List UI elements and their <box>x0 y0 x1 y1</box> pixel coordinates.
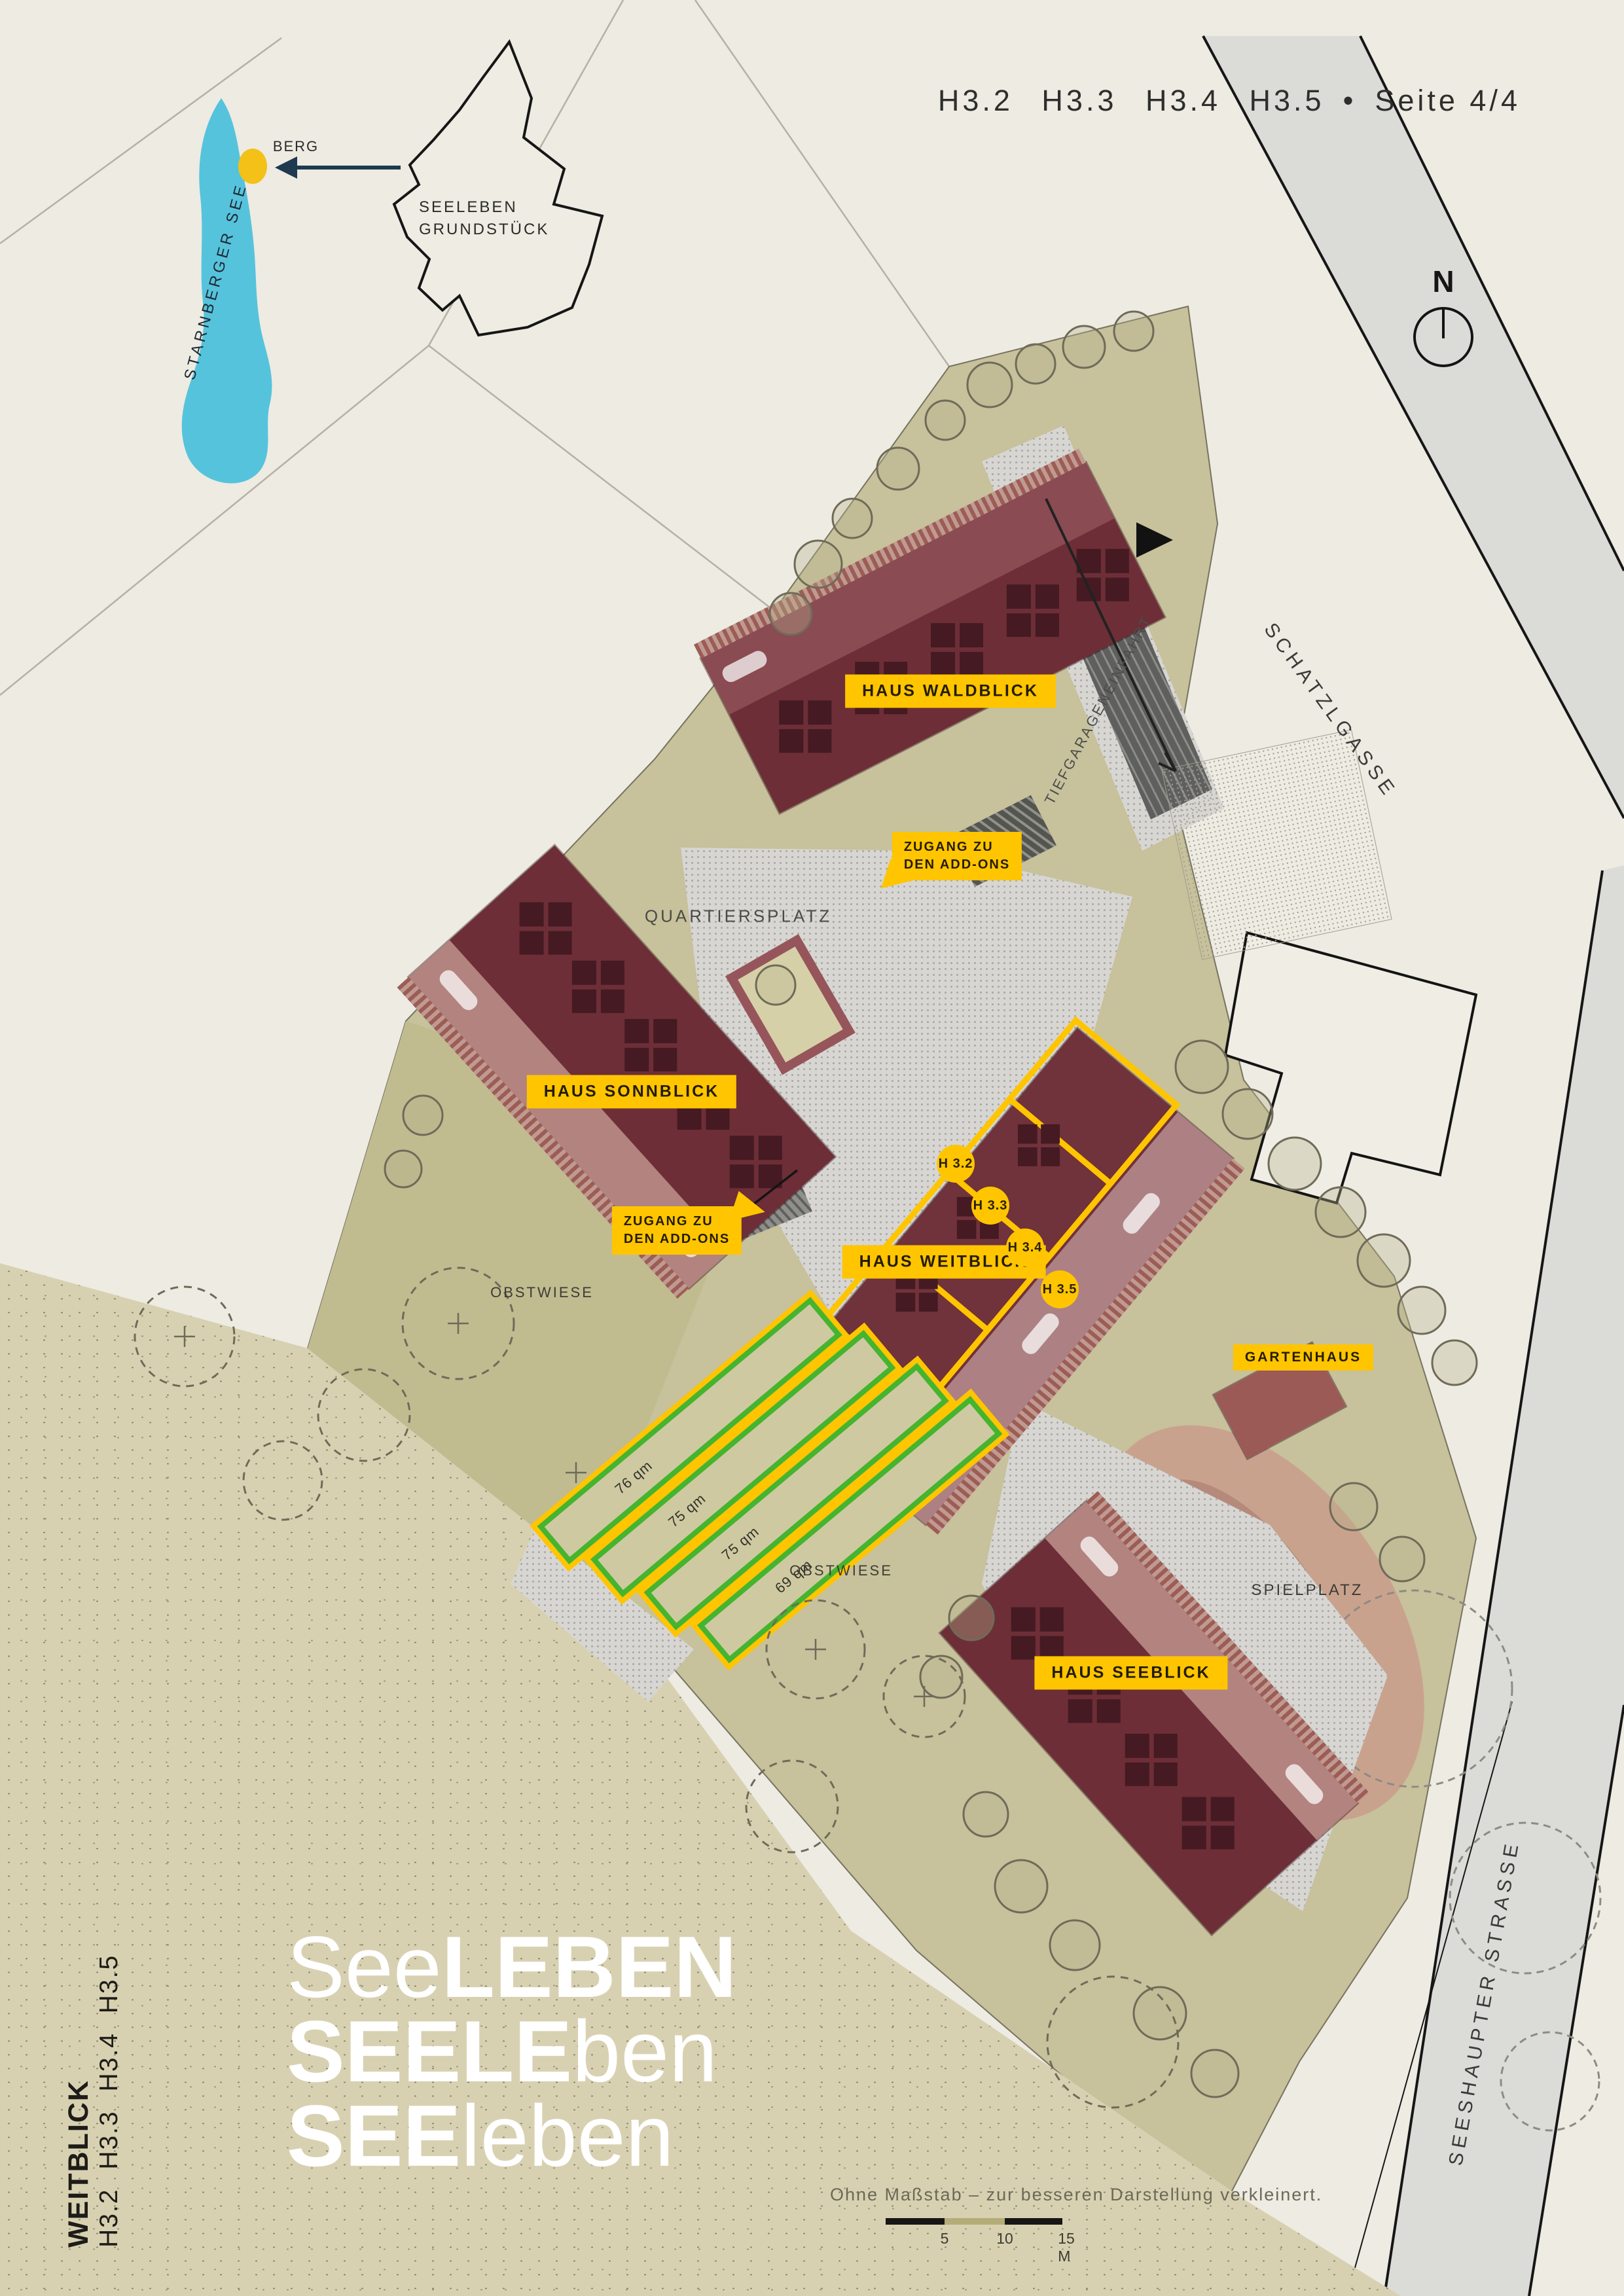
sidebar-subtitle: H3.2 H3.3 H3.4 H3.5 <box>95 1954 124 2248</box>
inset-site-line1: SEELEBEN <box>419 196 549 219</box>
playground-label: SPIELPLATZ <box>1252 1581 1363 1600</box>
brand-line1-bold: LEBEN <box>442 1919 737 2016</box>
zugang-line2: DEN ADD-ONS <box>624 1230 730 1248</box>
header-bullet: • <box>1343 84 1357 118</box>
unit-badge-h32: H 3.2 <box>937 1145 975 1183</box>
brand-line3: SEEleben <box>287 2094 736 2179</box>
scale-segment <box>945 2218 1005 2225</box>
tree-crosses <box>174 1313 935 1707</box>
label-haus-sonnblick: HAUS SONNBLICK <box>527 1075 736 1109</box>
scale-tick-10: 10 <box>996 2230 1013 2248</box>
orchard-south-label: OBSTWIESE <box>789 1562 893 1579</box>
site-plan-sheet: 76 qm 75 qm 75 qm 69 qm <box>0 0 1624 2296</box>
brand-title: SeeLEBEN SEELEben SEEleben <box>287 1926 736 2179</box>
plaza-planter <box>732 941 850 1069</box>
brand-line2-bold: SEELE <box>287 2003 572 2100</box>
scale-bar: 5 10 15 M <box>886 2218 1066 2247</box>
zugang-line1: ZUGANG ZU <box>904 838 1010 856</box>
scale-tick-15: 15 M <box>1058 2230 1075 2265</box>
inset-site-label: SEELEBEN GRUNDSTÜCK <box>419 196 549 241</box>
plaza-label: QUARTIERSPLATZ <box>645 906 832 927</box>
scale-segment <box>886 2218 945 2225</box>
brand-line1: SeeLEBEN <box>287 1926 736 2010</box>
header-page-number: Seite 4/4 <box>1375 84 1521 118</box>
unit-badge-h34: H 3.4 <box>1006 1229 1044 1266</box>
brand-line3-light: leben <box>461 2088 674 2185</box>
trees <box>385 312 1477 2097</box>
zugang-line1: ZUGANG ZU <box>624 1213 730 1230</box>
label-gartenhaus: GARTENHAUS <box>1233 1344 1373 1371</box>
unit-badge-h35: H 3.5 <box>1041 1270 1079 1308</box>
scale-disclaimer: Ohne Maßstab – zur besseren Darstellung … <box>830 2185 1322 2205</box>
brand-line1-light: See <box>287 1919 442 2016</box>
label-haus-waldblick: HAUS WALDBLICK <box>845 675 1056 708</box>
zugang-line2: DEN ADD-ONS <box>904 856 1010 874</box>
unit-badge-h33: H 3.3 <box>971 1187 1009 1225</box>
label-zugang-addons-south: ZUGANG ZU DEN ADD-ONS <box>612 1206 742 1255</box>
sidebar-title: WEITBLICK <box>63 1954 95 2248</box>
ramp-arrow <box>1046 499 1176 771</box>
scale-segment <box>1005 2218 1062 2225</box>
brand-line3-bold: SEE <box>287 2088 461 2185</box>
map-top-graphics <box>0 0 1624 2296</box>
header-house-numbers: H3.2 H3.3 H3.4 H3.5 <box>938 84 1325 118</box>
sidebar-title-block: WEITBLICK H3.2 H3.3 H3.4 H3.5 <box>63 1954 124 2248</box>
berg-label: BERG <box>273 138 319 155</box>
brand-line2-light: ben <box>572 2003 717 2100</box>
compass-north-label: N <box>1432 264 1454 299</box>
scale-tick-5: 5 <box>941 2230 949 2248</box>
label-haus-seeblick: HAUS SEEBLICK <box>1034 1657 1227 1690</box>
sheet-header: H3.2 H3.3 H3.4 H3.5 • Seite 4/4 <box>938 84 1521 118</box>
brand-line2: SEELEben <box>287 2010 736 2094</box>
orchard-west-label: OBSTWIESE <box>490 1284 594 1301</box>
inset-site-line2: GRUNDSTÜCK <box>419 219 549 241</box>
